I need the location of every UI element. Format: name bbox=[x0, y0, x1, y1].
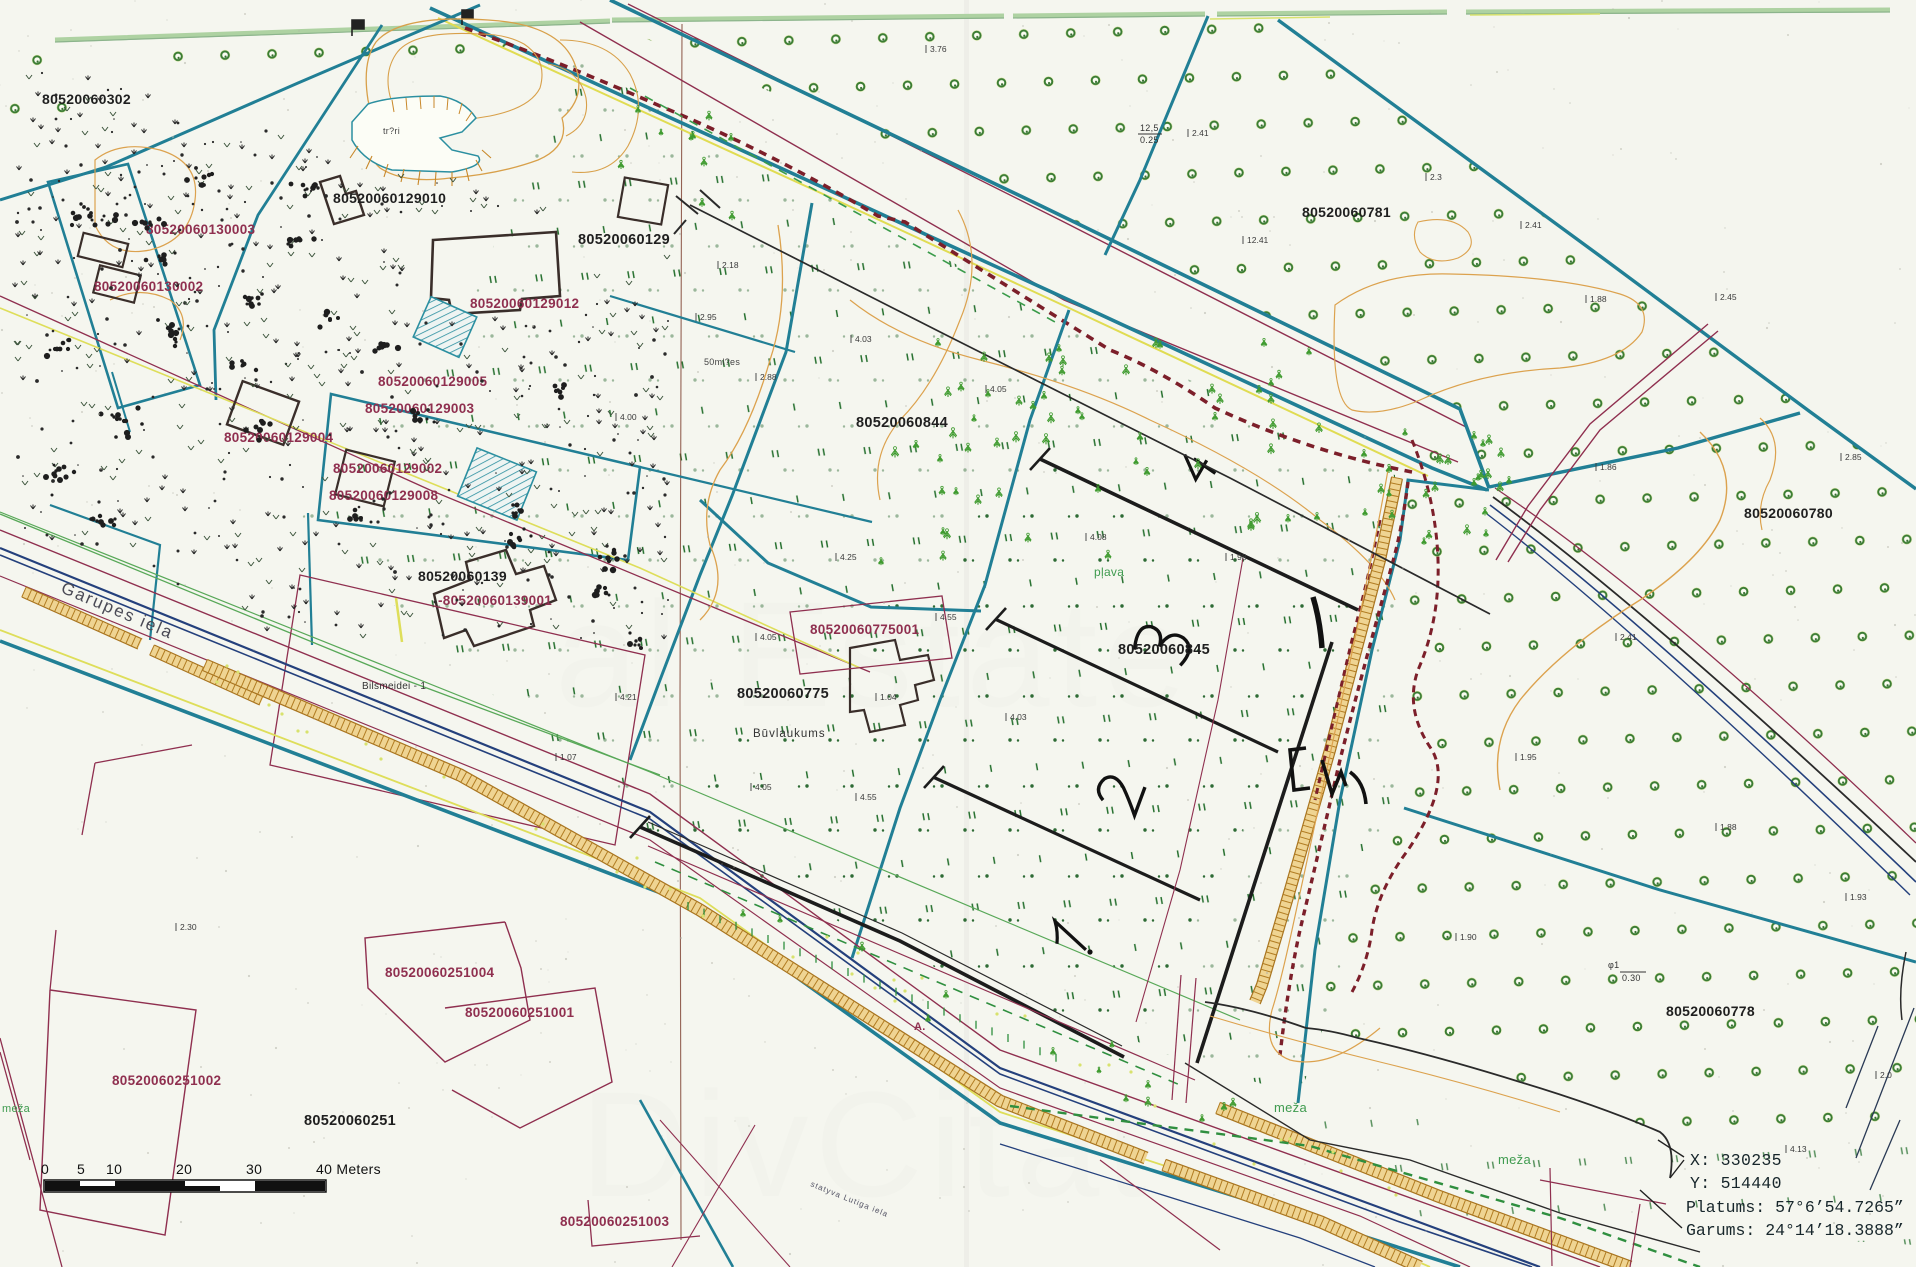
svg-text:80520060129004: 80520060129004 bbox=[224, 430, 334, 445]
svg-text:20: 20 bbox=[176, 1161, 192, 1177]
svg-text:1.95: 1.95 bbox=[1520, 752, 1537, 762]
svg-text:meža: meža bbox=[1274, 1100, 1307, 1115]
svg-text:φ1: φ1 bbox=[1608, 960, 1619, 970]
svg-text:2.0: 2.0 bbox=[1880, 1070, 1892, 1080]
svg-text:Būvlaukums: Būvlaukums bbox=[753, 728, 826, 740]
svg-text:2.41: 2.41 bbox=[1192, 128, 1209, 138]
svg-text:2.30: 2.30 bbox=[180, 922, 197, 932]
svg-text:2.18: 2.18 bbox=[722, 260, 739, 270]
svg-text:2.95: 2.95 bbox=[700, 312, 717, 322]
svg-text:80520060251002: 80520060251002 bbox=[112, 1073, 221, 1088]
svg-text:meža: meža bbox=[2, 1103, 31, 1115]
svg-text:4.08: 4.08 bbox=[1090, 532, 1107, 542]
svg-text:40 Meters: 40 Meters bbox=[316, 1161, 381, 1177]
svg-text:1.04: 1.04 bbox=[880, 692, 897, 702]
svg-text:80520060844: 80520060844 bbox=[856, 415, 948, 431]
svg-text:3.76: 3.76 bbox=[930, 44, 947, 54]
svg-text:80520060129010: 80520060129010 bbox=[333, 190, 446, 206]
svg-text:0.30: 0.30 bbox=[1622, 973, 1641, 983]
svg-text:80520060780: 80520060780 bbox=[1744, 505, 1833, 521]
svg-text:2.85: 2.85 bbox=[1845, 452, 1862, 462]
svg-text:80520060845: 80520060845 bbox=[1118, 642, 1210, 658]
svg-text:80520060251004: 80520060251004 bbox=[385, 965, 495, 980]
svg-text:1.98: 1.98 bbox=[1230, 552, 1247, 562]
svg-text:2.45: 2.45 bbox=[1720, 292, 1737, 302]
svg-text:Platums: 57°6’54.7265”: Platums: 57°6’54.7265” bbox=[1686, 1198, 1904, 1217]
svg-text:80520060251003: 80520060251003 bbox=[560, 1214, 670, 1229]
svg-text:4.13: 4.13 bbox=[1790, 1144, 1807, 1154]
svg-text:1.88: 1.88 bbox=[1590, 294, 1607, 304]
svg-text:A.: A. bbox=[914, 1021, 926, 1033]
svg-text:80520060251001: 80520060251001 bbox=[465, 1005, 575, 1020]
svg-text:80520060129012: 80520060129012 bbox=[470, 296, 579, 311]
svg-text:10: 10 bbox=[106, 1161, 122, 1177]
svg-text:4.55: 4.55 bbox=[940, 612, 957, 622]
svg-text:1.90: 1.90 bbox=[1460, 932, 1477, 942]
svg-text:2.41: 2.41 bbox=[1525, 220, 1542, 230]
svg-text:80520060775001: 80520060775001 bbox=[810, 622, 920, 637]
svg-text:1.88: 1.88 bbox=[1720, 822, 1737, 832]
svg-text:5: 5 bbox=[77, 1161, 85, 1177]
svg-text:0: 0 bbox=[41, 1161, 49, 1177]
svg-text:1.93: 1.93 bbox=[1850, 892, 1867, 902]
svg-text:50ml?es: 50ml?es bbox=[704, 357, 740, 367]
svg-text:-80520060139001: -80520060139001 bbox=[438, 593, 552, 608]
svg-text:2.3: 2.3 bbox=[1430, 172, 1442, 182]
svg-text:80520060139: 80520060139 bbox=[418, 568, 507, 584]
svg-text:80520060129005: 80520060129005 bbox=[378, 374, 488, 389]
svg-text:12,5: 12,5 bbox=[1140, 123, 1159, 133]
svg-text:1.86: 1.86 bbox=[1600, 462, 1617, 472]
svg-text:4.21: 4.21 bbox=[620, 692, 637, 702]
svg-text:4.55: 4.55 bbox=[860, 792, 877, 802]
svg-text:Y: 514440: Y: 514440 bbox=[1690, 1174, 1782, 1193]
svg-text:80520060781: 80520060781 bbox=[1302, 204, 1391, 220]
svg-text:2.88: 2.88 bbox=[760, 372, 777, 382]
svg-text:1.07: 1.07 bbox=[560, 752, 577, 762]
svg-text:Bilsmeidei - 1: Bilsmeidei - 1 bbox=[362, 681, 426, 692]
svg-text:4.05: 4.05 bbox=[760, 632, 777, 642]
svg-text:80520060129: 80520060129 bbox=[578, 232, 670, 248]
svg-text:30: 30 bbox=[246, 1161, 262, 1177]
svg-text:4.03: 4.03 bbox=[1010, 712, 1027, 722]
svg-text:4.00: 4.00 bbox=[620, 412, 637, 422]
svg-text:Garums: 24°14’18.3888”: Garums: 24°14’18.3888” bbox=[1686, 1221, 1904, 1240]
svg-text:80520060129008: 80520060129008 bbox=[329, 488, 439, 503]
svg-text:meža: meža bbox=[1498, 1152, 1531, 1167]
svg-text:80520060251: 80520060251 bbox=[304, 1113, 396, 1129]
svg-text:80520060775: 80520060775 bbox=[737, 686, 829, 702]
svg-text:80520060778: 80520060778 bbox=[1666, 1003, 1755, 1019]
svg-text:2.41: 2.41 bbox=[1620, 632, 1637, 642]
svg-text:X: 330235: X: 330235 bbox=[1690, 1151, 1782, 1170]
svg-text:12.41: 12.41 bbox=[1247, 235, 1269, 245]
svg-text:pļava: pļava bbox=[1094, 565, 1124, 579]
svg-text:4.05: 4.05 bbox=[755, 782, 772, 792]
svg-text:tr?ri: tr?ri bbox=[383, 126, 400, 136]
svg-text:0.25: 0.25 bbox=[1140, 135, 1159, 145]
svg-text:4.25: 4.25 bbox=[840, 552, 857, 562]
svg-text:4.03: 4.03 bbox=[855, 334, 872, 344]
